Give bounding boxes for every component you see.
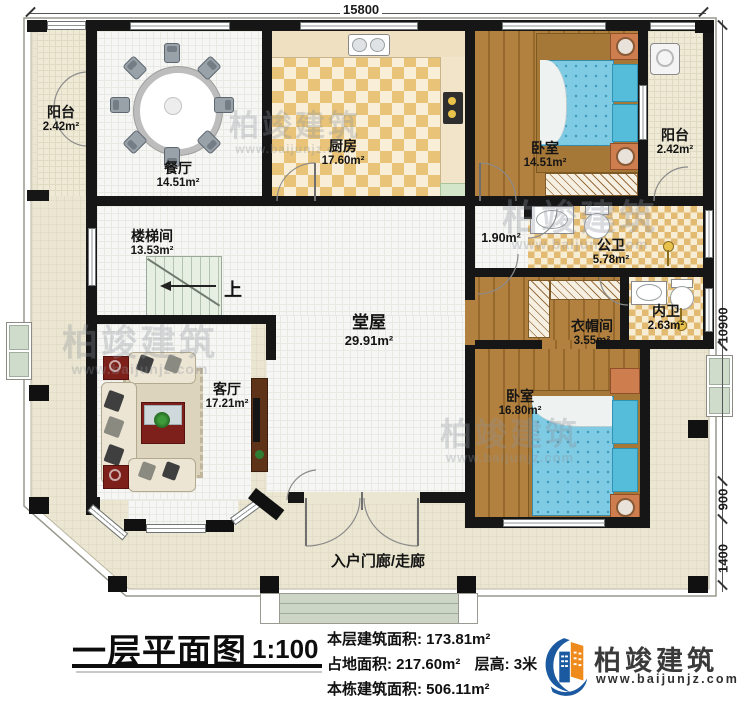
dimension-height: 10900 xyxy=(716,296,731,356)
room-label-balcony-right: 阳台 2.42m² xyxy=(657,127,693,157)
room-label-entry-porch: 入户门廊/走廊 xyxy=(331,553,425,571)
window xyxy=(705,288,713,332)
kitchen-counter-right xyxy=(440,57,466,196)
kitchen-sink-bowl-right xyxy=(370,38,385,52)
floor-plan-page: 柏竣建筑 www.baijunjz.com 柏竣建筑 www.baijunjz.… xyxy=(0,0,750,707)
dimension-width: 15800 xyxy=(340,2,382,17)
wall xyxy=(27,190,49,201)
window xyxy=(146,524,206,533)
brand-logo-icon xyxy=(541,636,591,698)
stove-burner-1 xyxy=(448,97,456,105)
nightstand-lamp xyxy=(616,498,635,517)
wardrobe-bedroom-top xyxy=(545,173,638,196)
wall xyxy=(465,31,475,196)
title-underline xyxy=(72,664,322,668)
wall xyxy=(86,315,276,324)
plant xyxy=(154,412,170,428)
nightstand-lamp xyxy=(616,147,635,166)
stairs-arrow-head xyxy=(160,281,171,291)
wall xyxy=(465,206,475,300)
room-label-bedroom-top: 卧室 14.51m² xyxy=(524,140,567,170)
bay-window-left xyxy=(6,322,32,380)
column xyxy=(260,576,279,593)
stairs-arrow-line xyxy=(170,285,216,287)
window xyxy=(47,21,86,30)
cloakroom-rack-vertical xyxy=(528,280,550,338)
window xyxy=(639,85,647,140)
stairs-up-label: 上 xyxy=(224,276,242,302)
public-toilet-bowl xyxy=(584,213,610,239)
dining-chair xyxy=(164,43,180,63)
room-label-dining: 餐厅 14.51m² xyxy=(157,160,200,190)
room-label-vestibule: 1.90m² xyxy=(481,231,521,246)
bay-window-right xyxy=(706,355,733,417)
room-label-bedroom-bottom: 卧室 16.80m² xyxy=(499,388,542,418)
floor-drain-stem xyxy=(667,250,669,266)
bed-headboard-cushion xyxy=(612,104,638,142)
tv-plant xyxy=(255,450,264,459)
wall xyxy=(475,268,714,277)
window xyxy=(503,519,605,527)
stat-land-area: 占地面积: 217.60m² 层高: 3米 xyxy=(327,653,537,674)
wall xyxy=(27,20,47,32)
column xyxy=(688,420,708,438)
side-table-lamp xyxy=(109,469,121,481)
nightstand-lamp xyxy=(616,37,635,56)
room-label-stair-hall: 楼梯间 13.53m² xyxy=(131,228,174,258)
plan-scale: 1:100 xyxy=(252,634,319,665)
public-bath-sink xyxy=(536,210,568,229)
dining-chair xyxy=(214,97,234,113)
room-label-public-bath: 公卫 5.78m² xyxy=(593,237,629,267)
step-rail xyxy=(260,593,281,624)
dimension-porch: 900 xyxy=(716,483,731,517)
window xyxy=(130,22,230,30)
column xyxy=(695,20,714,33)
wall xyxy=(620,277,629,340)
wall xyxy=(524,206,532,219)
step-rail xyxy=(457,593,478,624)
cloakroom-rack-horizontal xyxy=(550,280,622,300)
dimension-entry: 1400 xyxy=(716,539,731,579)
column xyxy=(29,385,49,401)
tv xyxy=(253,398,260,442)
dining-table-center xyxy=(164,97,182,115)
room-label-cloakroom: 衣帽间 3.55m² xyxy=(571,318,613,348)
bed-headboard-cushion xyxy=(612,448,638,492)
kitchen-sink-bowl-left xyxy=(352,38,367,52)
wall xyxy=(266,324,276,360)
bed-headboard-cushion xyxy=(612,400,638,444)
column xyxy=(29,497,49,514)
stove-burner-2 xyxy=(448,110,456,118)
wall xyxy=(262,31,272,196)
title-underline-shadow xyxy=(76,671,322,673)
room-label-inner-bath: 内卫 2.63m² xyxy=(648,303,684,333)
stat-floor-area: 本层建筑面积: 173.81m² xyxy=(327,628,490,649)
inner-bath-sink xyxy=(636,284,662,301)
entry-steps xyxy=(279,593,459,624)
column xyxy=(457,576,476,593)
side-table-lamp xyxy=(109,360,121,372)
bed-headboard-cushion xyxy=(612,64,638,102)
window xyxy=(88,228,96,286)
window xyxy=(502,22,606,30)
column xyxy=(108,576,127,592)
stat-total-area: 本栋建筑面积: 506.11m² xyxy=(327,678,490,699)
wall xyxy=(206,520,234,532)
main-door-opening xyxy=(304,492,420,503)
window xyxy=(650,22,698,30)
nightstand xyxy=(610,368,640,394)
room-label-living: 客厅 17.21m² xyxy=(206,381,249,411)
dining-chair xyxy=(110,97,130,113)
kitchen-mat xyxy=(440,183,466,197)
room-label-balcony-left: 阳台 2.42m² xyxy=(43,104,79,134)
washing-machine-door xyxy=(656,49,674,67)
room-label-hall: 堂屋 29.91m² xyxy=(345,313,393,348)
wall xyxy=(640,349,650,527)
wall xyxy=(86,196,714,206)
wall xyxy=(124,519,146,531)
window xyxy=(705,210,713,258)
room-label-kitchen: 厨房 17.60m² xyxy=(322,138,365,168)
column xyxy=(688,576,708,593)
brand-logo-site: www.baijunjz.com xyxy=(596,672,739,686)
window xyxy=(300,22,418,30)
